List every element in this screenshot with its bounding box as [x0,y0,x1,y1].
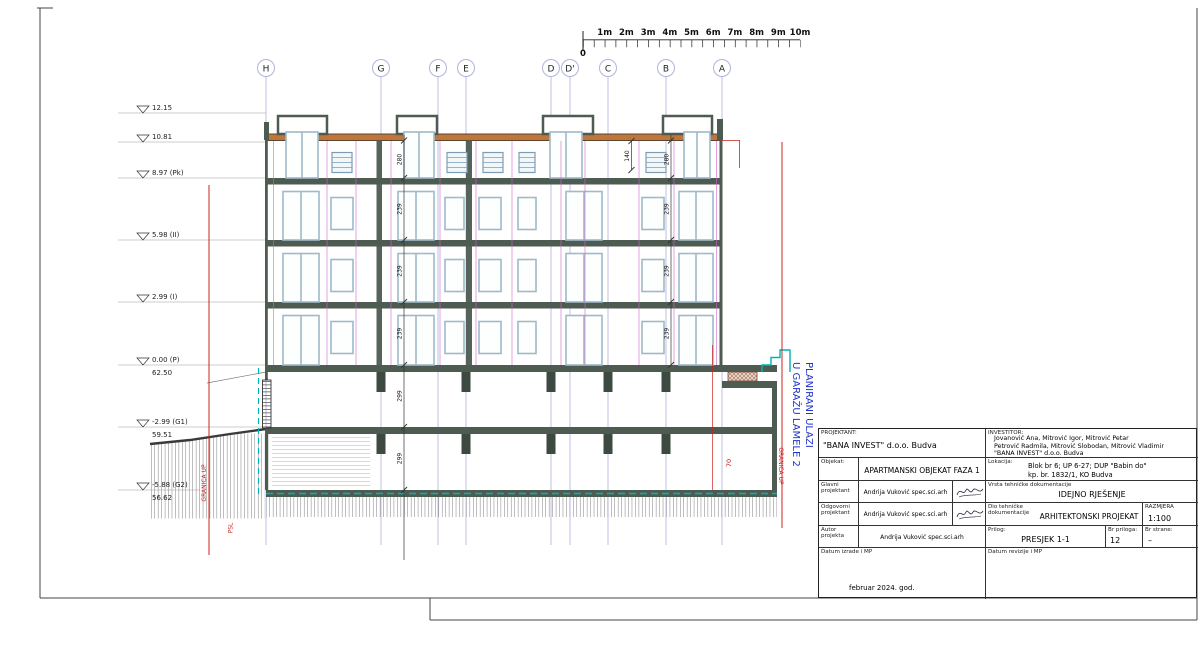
objekat-value: APARTMANSKI OBJEKAT FAZA 1 [859,466,985,475]
scale-1m: 1m [597,28,612,38]
floor-windows [283,192,713,366]
garage-entrance-annotation: PLANIRANI ULAZI U GARAŽU LAMELE 2 [790,362,814,467]
odgovorni-label: Odgovorni projektant [821,504,857,516]
scale-6m: 6m [706,28,721,38]
grid-label-f: F [435,65,440,75]
prilog-value: PRESJEK 1-1 [986,535,1105,544]
investitor-line2: Petrović Radmila, Mitrović Slobodan, Mit… [994,443,1164,451]
scale-zero: 0 [580,49,586,59]
odgovorni-label-cell: Odgovorni projektant [819,503,859,526]
signature-scribble [954,483,985,501]
br-strane-label: Br strane: [1145,527,1173,533]
scale-2m: 2m [619,28,634,38]
scale-3m: 3m [641,28,656,38]
grid-bubbles: H G F E D D' C B A [258,60,731,77]
dio-cell: Dio tehničke dokumentacije ARHITEKTONSKI… [986,503,1143,526]
autor-name-cell: Andrija Vuković spec.sci.arh [859,526,986,548]
prilog-cell: Prilog: PRESJEK 1-1 [986,526,1106,548]
attic-louvers [332,153,666,173]
grid-label-g: G [378,65,385,75]
parapet-right [717,119,723,140]
psl-label: PSL [228,522,235,533]
roof-boxes [278,116,712,134]
elev-7-datum: 56.62 [152,494,172,502]
lokacija-line2: kp. br. 1832/1, KO Budva [1028,471,1147,480]
garage-columns [377,372,671,454]
odgovorni-signature-cell [953,503,986,526]
grid-label-h: H [263,65,270,75]
grid-label-d2: D' [565,65,574,75]
parapet-left [264,122,269,140]
vrsta-value: IDEJNO RJEŠENJE [986,490,1198,499]
dim-left-3: 239 [397,328,404,340]
dim-right-1: 239 [664,203,671,215]
title-block: PROJEKTANT: "BANA INVEST" d.o.o. Budva I… [818,428,1197,598]
br-priloga-label: Br priloga: [1108,527,1137,533]
signature-scribble [954,505,985,523]
autor-label: Autor projekta [821,527,855,539]
dim-right-2: 239 [664,265,671,277]
elev-5-datum: 62.50 [152,369,172,377]
scale-bar: 0 1m 2m 3m 4m 5m 6m 7m 8m 9m 10m [580,28,810,59]
scale-9m: 9m [771,28,786,38]
granica-up-right-label: GRANICA UP [777,447,784,485]
dio-value: ARHITEKTONSKI PROJEKAT [1036,512,1142,521]
datum-revizije-label: Datum revizije i MP [988,549,1042,555]
entrance-label-line2: U GARAŽU LAMELE 2 [790,362,803,467]
elev-4: 2.99 (I) [152,293,178,301]
granica-up-left-label: GRANICA UP [201,464,208,502]
entrance-label-line1: PLANIRANI ULAZI [803,362,814,448]
red-dim-70: 70 [725,459,733,467]
investitor-line1: Jovanović Ana, Mitrović Igor, Mitrović P… [994,435,1164,443]
dim-left-0: 280 [397,154,404,166]
glavni-name: Andrija Vuković spec.sci.arh [859,489,952,496]
elev-7: -5.88 (G2) [152,481,188,489]
scale-5m: 5m [684,28,699,38]
lokacija-label: Lokacija: [988,459,1013,465]
scale-8m: 8m [749,28,764,38]
lokacija-line1: Blok br 6; UP 6-27; DUP "Babin do" [1028,462,1147,471]
dim-left-5: 299 [397,453,404,465]
autor-name: Andrija Vuković spec.sci.arh [859,534,985,541]
projektant-label: PROJEKTANT: [821,430,857,436]
elev-3: 5.98 (II) [152,231,180,239]
projektant-cell: PROJEKTANT: "BANA INVEST" d.o.o. Budva [819,429,986,458]
elev-2: 8.97 (Pk) [152,169,184,177]
prilog-label: Prilog: [988,527,1006,533]
br-strane-cell: Br strane: – [1143,526,1198,548]
drawing-sheet: H G F E D D' C B A 0 1m 2m 3m 4m 5m 6m 7… [0,0,1200,645]
scale-10m: 10m [790,28,811,38]
scale-4m: 4m [662,28,677,38]
datum-revizije-cell: Datum revizije i MP [986,548,1198,599]
objekat-value-cell: APARTMANSKI OBJEKAT FAZA 1 [859,458,986,481]
projektant-value: "BANA INVEST" d.o.o. Budva [823,441,937,450]
odgovorni-name-cell: Andrija Vuković spec.sci.arh [859,503,953,526]
dim-right-3: 239 [664,328,671,340]
dim-left-1: 239 [397,203,404,215]
br-priloga-cell: Br priloga: 12 [1106,526,1143,548]
glavni-label-cell: Glavni projektant [819,481,859,503]
odgovorni-name: Andrija Vuković spec.sci.arh [859,511,952,518]
elev-5: 0.00 (P) [152,356,180,364]
grid-lines [266,77,722,546]
investitor-cell: INVESTITOR: Jovanović Ana, Mitrović Igor… [986,429,1198,458]
roof-band [266,134,722,141]
elev-6: -2.99 (G1) [152,418,188,426]
investitor-line3: "BANA INVEST" d.o.o. Budva [994,450,1164,458]
razmjera-label: RAZMJERA [1145,504,1174,510]
grid-label-c: C [605,65,611,75]
datum-izrade-value: februar 2024. god. [849,584,915,592]
dim-right-0: 280 [664,154,671,166]
datum-izrade-label: Datum izrade i MP [821,549,872,555]
dim-attic-140: 140 [624,150,631,162]
grid-label-b: B [663,65,669,75]
elev-0: 12.15 [152,104,172,112]
lokacija-cell: Lokacija: Blok br 6; UP 6-27; DUP "Babin… [986,458,1198,481]
grid-label-d: D [548,65,555,75]
br-strane-value: – [1148,536,1152,545]
razmjera-cell: RAZMJERA 1:100 [1143,503,1198,526]
elev-6-datum: 59.51 [152,431,172,439]
elev-1: 10.81 [152,133,172,141]
razmjera-value: 1:100 [1148,514,1171,523]
objekat-label: Objekat: [821,459,845,465]
datum-izrade-cell: Datum izrade i MP februar 2024. god. [819,548,986,599]
vrsta-cell: Vrsta tehničke dokumentacije IDEJNO RJEŠ… [986,481,1198,503]
glavni-label: Glavni projektant [821,482,855,494]
dim-left-4: 299 [397,390,404,402]
scale-7m: 7m [728,28,743,38]
glavni-signature-cell [953,481,986,503]
glavni-name-cell: Andrija Vuković spec.sci.arh [859,481,953,503]
dim-left-2: 239 [397,265,404,277]
objekat-label-cell: Objekat: [819,458,859,481]
grid-label-e: E [463,65,469,75]
grid-label-a: A [719,65,726,75]
crosshatch-block [728,372,757,381]
autor-label-cell: Autor projekta [819,526,859,548]
terrain-slope-line [207,372,266,383]
dio-label: Dio tehničke dokumentacije [988,504,1043,516]
vrsta-label: Vrsta tehničke dokumentacije [988,482,1071,488]
br-priloga-value: 12 [1110,536,1120,545]
building-section [259,116,791,497]
